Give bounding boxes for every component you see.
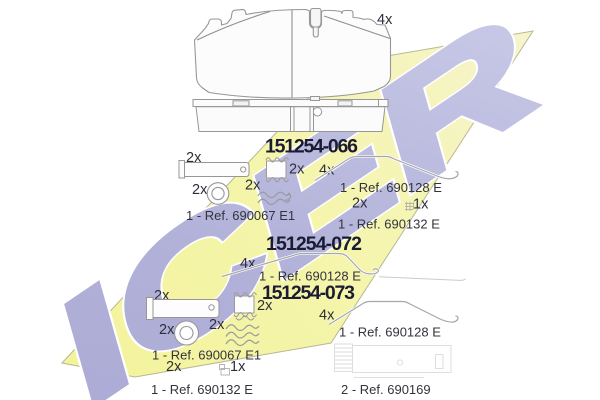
svg-text:2x: 2x (352, 196, 368, 212)
svg-text:2x: 2x (257, 298, 273, 314)
svg-text:151254-073: 151254-073 (262, 282, 355, 304)
svg-text:4x: 4x (377, 12, 393, 28)
svg-text:2x: 2x (289, 162, 305, 178)
svg-text:1 - Ref. 690128 E: 1 - Ref. 690128 E (340, 180, 442, 195)
svg-text:151254-066: 151254-066 (265, 136, 358, 158)
svg-text:151254-072: 151254-072 (266, 233, 362, 255)
svg-text:1 - Ref. 690128 E: 1 - Ref. 690128 E (339, 325, 441, 340)
svg-text:1x: 1x (230, 359, 246, 375)
svg-text:2 - Ref. 690169: 2 - Ref. 690169 (341, 382, 431, 397)
svg-text:2x: 2x (245, 178, 261, 194)
svg-text:1 - Ref. 690067 E1: 1 - Ref. 690067 E1 (186, 208, 295, 223)
svg-text:1 - Ref. 690132 E: 1 - Ref. 690132 E (151, 382, 253, 397)
svg-text:2x: 2x (192, 182, 208, 198)
svg-text:2x: 2x (209, 317, 225, 333)
svg-text:2x: 2x (166, 359, 182, 375)
svg-text:1 - Ref. 690132 E: 1 - Ref. 690132 E (338, 217, 440, 232)
svg-text:2x: 2x (159, 322, 175, 338)
svg-text:1x: 1x (413, 197, 429, 213)
